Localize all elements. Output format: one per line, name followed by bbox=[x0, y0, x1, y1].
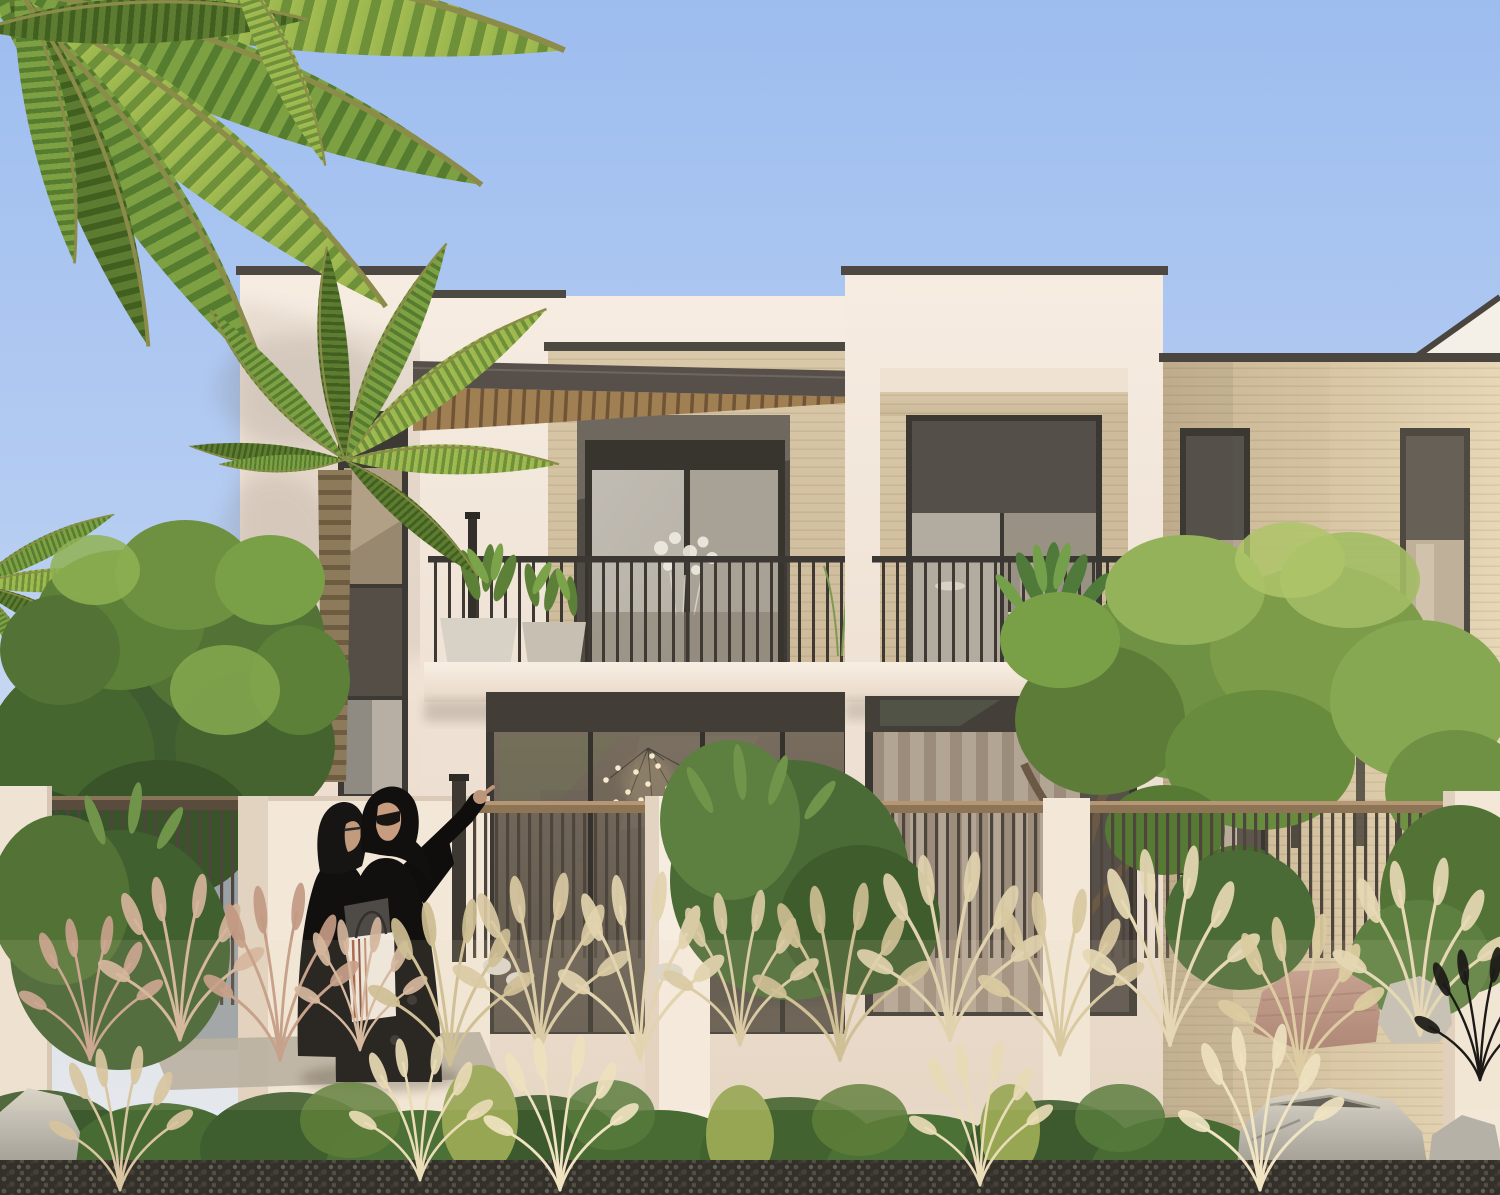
roof-coping bbox=[1159, 353, 1500, 362]
parapet-coping bbox=[544, 342, 850, 351]
sunlight-haze bbox=[0, 940, 1500, 1110]
roof-coping bbox=[416, 290, 566, 298]
architectural-rendering bbox=[0, 0, 1500, 1195]
roof-coping bbox=[841, 266, 1168, 275]
gravel-path bbox=[0, 1160, 1500, 1195]
scene bbox=[0, 0, 1500, 1195]
